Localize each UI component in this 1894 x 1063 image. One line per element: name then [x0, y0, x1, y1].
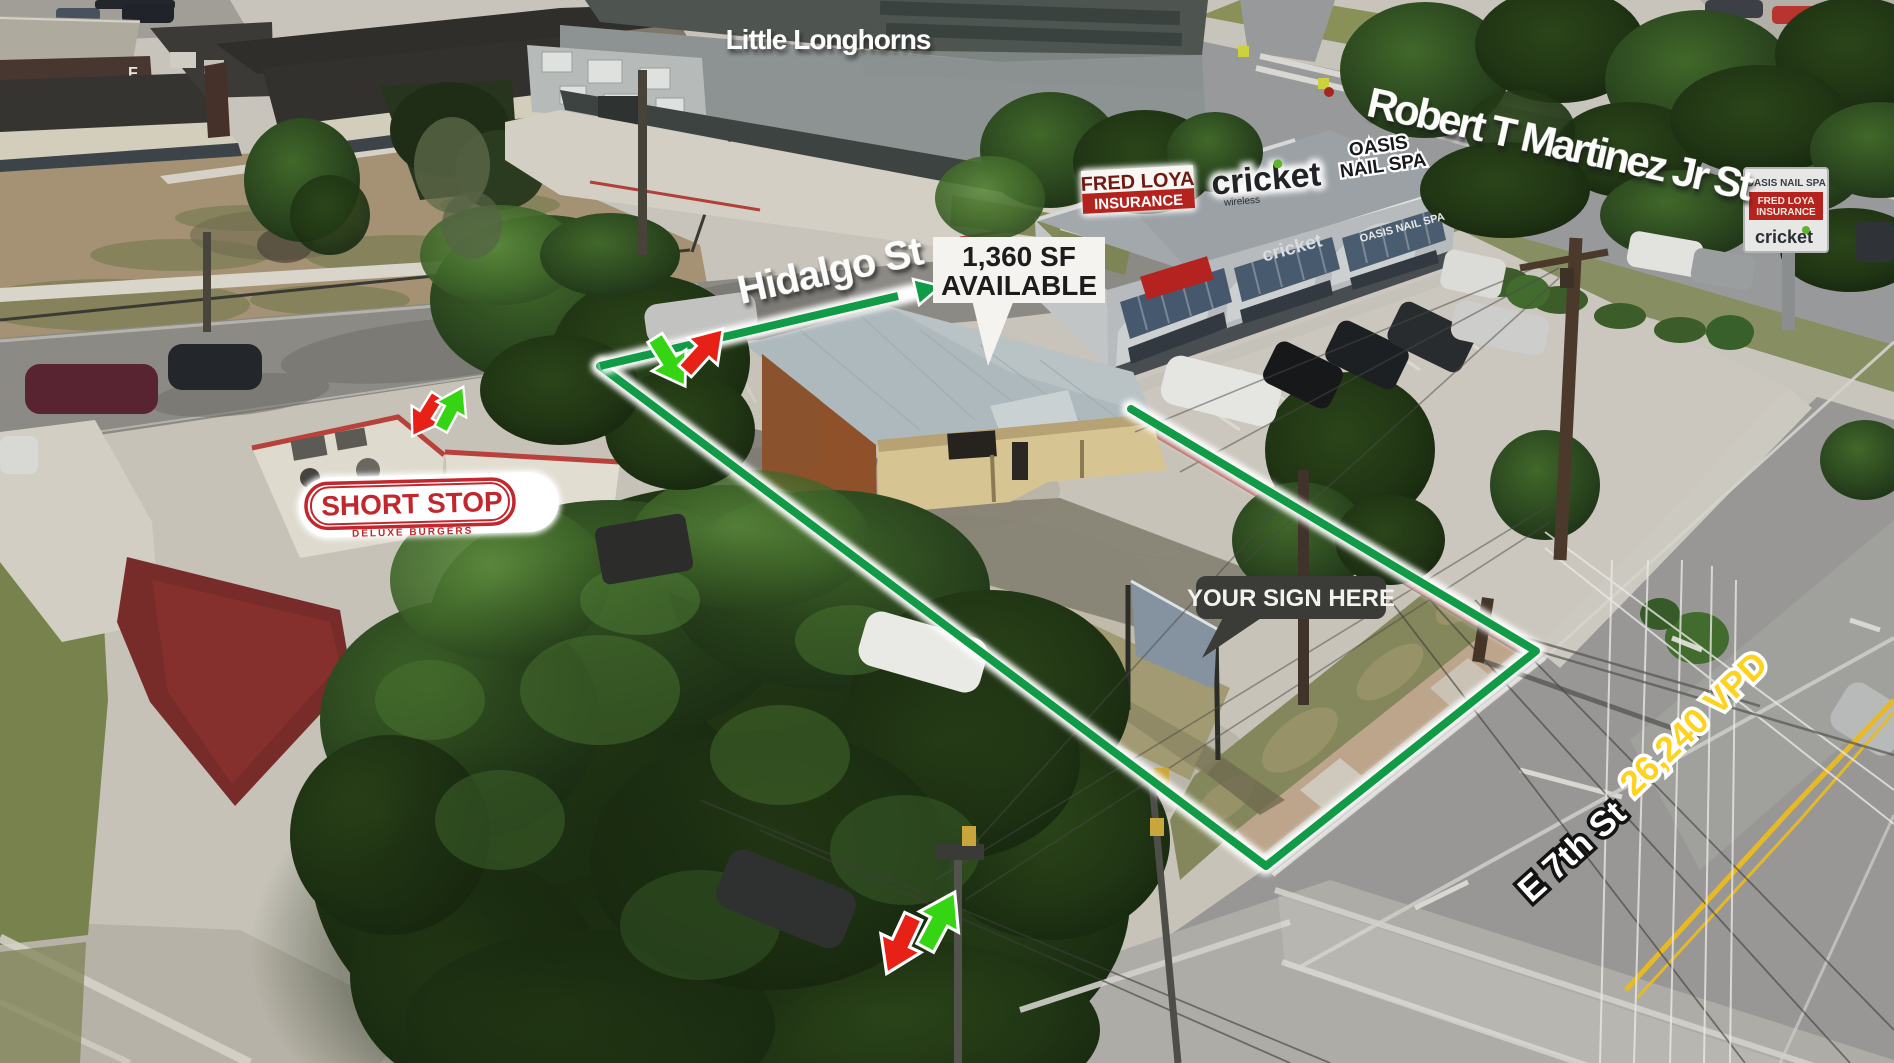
svg-text:SHORT STOP: SHORT STOP: [321, 486, 503, 522]
svg-text:Little Longhorns: Little Longhorns: [726, 24, 931, 55]
svg-text:INSURANCE: INSURANCE: [1756, 207, 1816, 218]
svg-text:1,360 SF: 1,360 SF: [962, 241, 1076, 272]
svg-text:OASIS NAIL SPA: OASIS NAIL SPA: [1746, 178, 1826, 189]
svg-text:FRED LOYA: FRED LOYA: [1758, 196, 1815, 207]
svg-text:YOUR SIGN HERE: YOUR SIGN HERE: [1187, 585, 1395, 612]
svg-text:AVAILABLE: AVAILABLE: [941, 270, 1097, 301]
